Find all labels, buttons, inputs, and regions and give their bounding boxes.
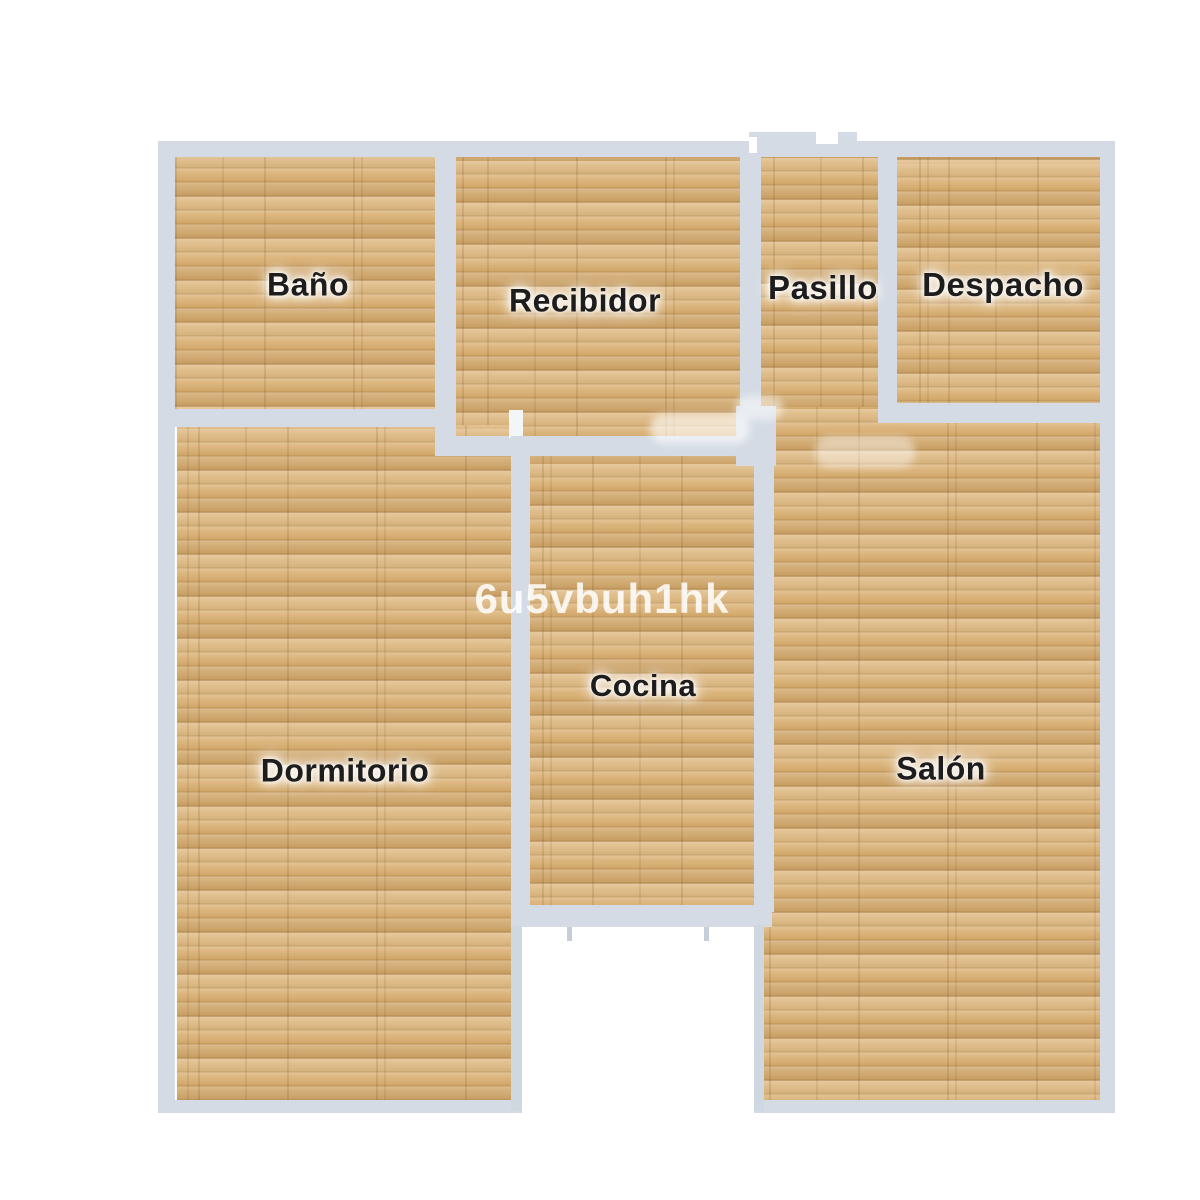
wall-pasillo-despacho (878, 141, 897, 423)
wall-outer-right (1100, 141, 1115, 1113)
entrance-door-slit (749, 137, 757, 153)
room-label-despacho: Despacho (922, 266, 1084, 304)
room-label-pasillo: Pasillo (768, 269, 878, 307)
wall-outer-top-step (749, 132, 857, 144)
wall-patio-notch-left (511, 925, 522, 1111)
wall-dormitorio-cocina (511, 436, 530, 911)
room-label-bano: Baño (267, 267, 349, 304)
smudge-artifact (650, 414, 750, 444)
wall-cocina-bottom (511, 905, 772, 927)
room-label-recibidor: Recibidor (509, 283, 661, 320)
floorplan-canvas: Baño Recibidor Pasillo Despacho Dormitor… (0, 0, 1200, 1200)
window-tick-left (567, 927, 572, 941)
wall-patio-notch-right (754, 925, 764, 1111)
door-stub-mark (509, 410, 523, 438)
wall-outer-top (158, 141, 1115, 157)
wall-outer-left (158, 141, 175, 1113)
smudge-artifact (735, 396, 783, 420)
wall-outer-bottom-right (754, 1100, 1115, 1113)
watermark-text: 6u5vbuh1hk (474, 575, 729, 623)
smudge-artifact (815, 436, 915, 468)
room-label-cocina: Cocina (590, 668, 696, 704)
room-label-dormitorio: Dormitorio (261, 753, 430, 790)
entrance-door-notch (816, 130, 838, 144)
window-tick-right (704, 927, 709, 941)
wall-outer-bottom-left (158, 1100, 522, 1113)
wall-cocina-salon (754, 442, 774, 912)
wall-bano-dormitorio (158, 409, 455, 427)
room-label-salon: Salón (896, 751, 986, 788)
wall-despacho-bottom (878, 403, 1115, 423)
